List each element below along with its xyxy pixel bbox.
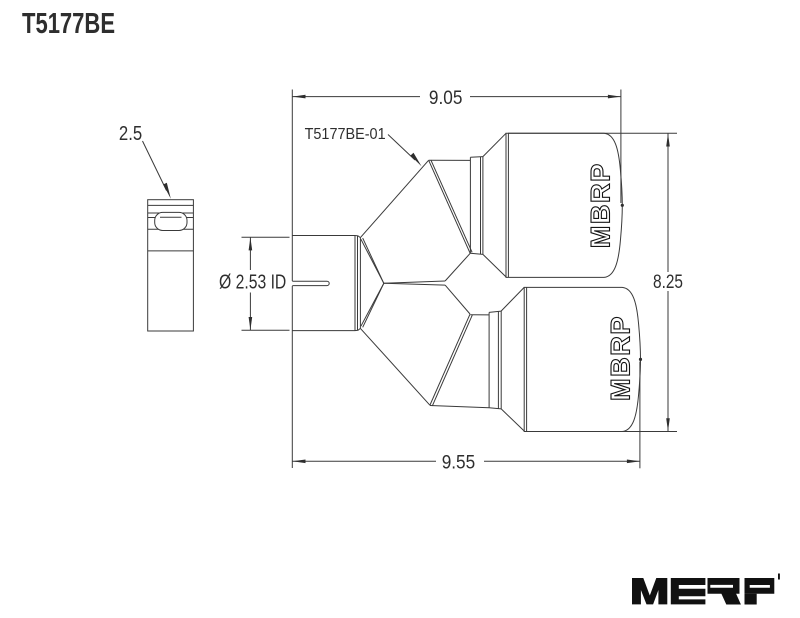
svg-text:MBRP: MBRP	[605, 315, 635, 401]
svg-text:Ø 2.53 ID: Ø 2.53 ID	[219, 272, 286, 294]
svg-text:8.25: 8.25	[653, 272, 683, 293]
svg-text:T5177BE-01: T5177BE-01	[305, 126, 386, 143]
svg-text:9.05: 9.05	[429, 88, 463, 109]
svg-text:T5177BE: T5177BE	[22, 8, 115, 40]
svg-text:MBRP: MBRP	[586, 162, 616, 248]
svg-text:2.5: 2.5	[119, 123, 142, 145]
svg-text:9.55: 9.55	[442, 453, 476, 474]
